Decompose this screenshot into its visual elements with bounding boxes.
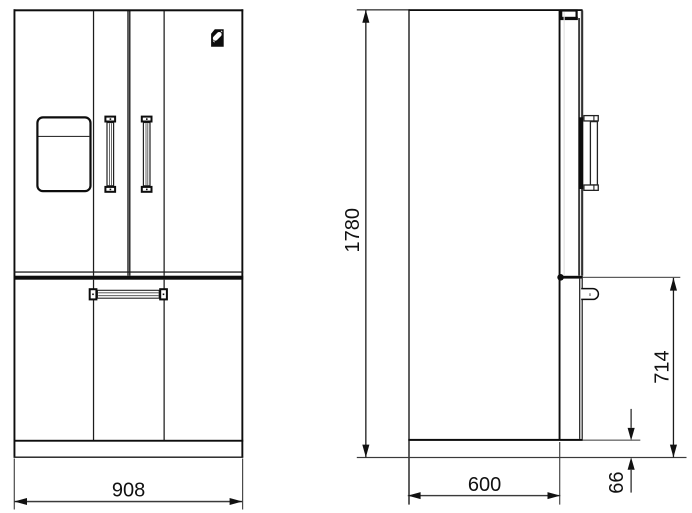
svg-text:1780: 1780 [342, 208, 364, 253]
svg-text:714: 714 [651, 350, 673, 383]
svg-text:66: 66 [606, 471, 628, 493]
svg-text:908: 908 [112, 479, 145, 501]
svg-text:600: 600 [468, 474, 501, 496]
